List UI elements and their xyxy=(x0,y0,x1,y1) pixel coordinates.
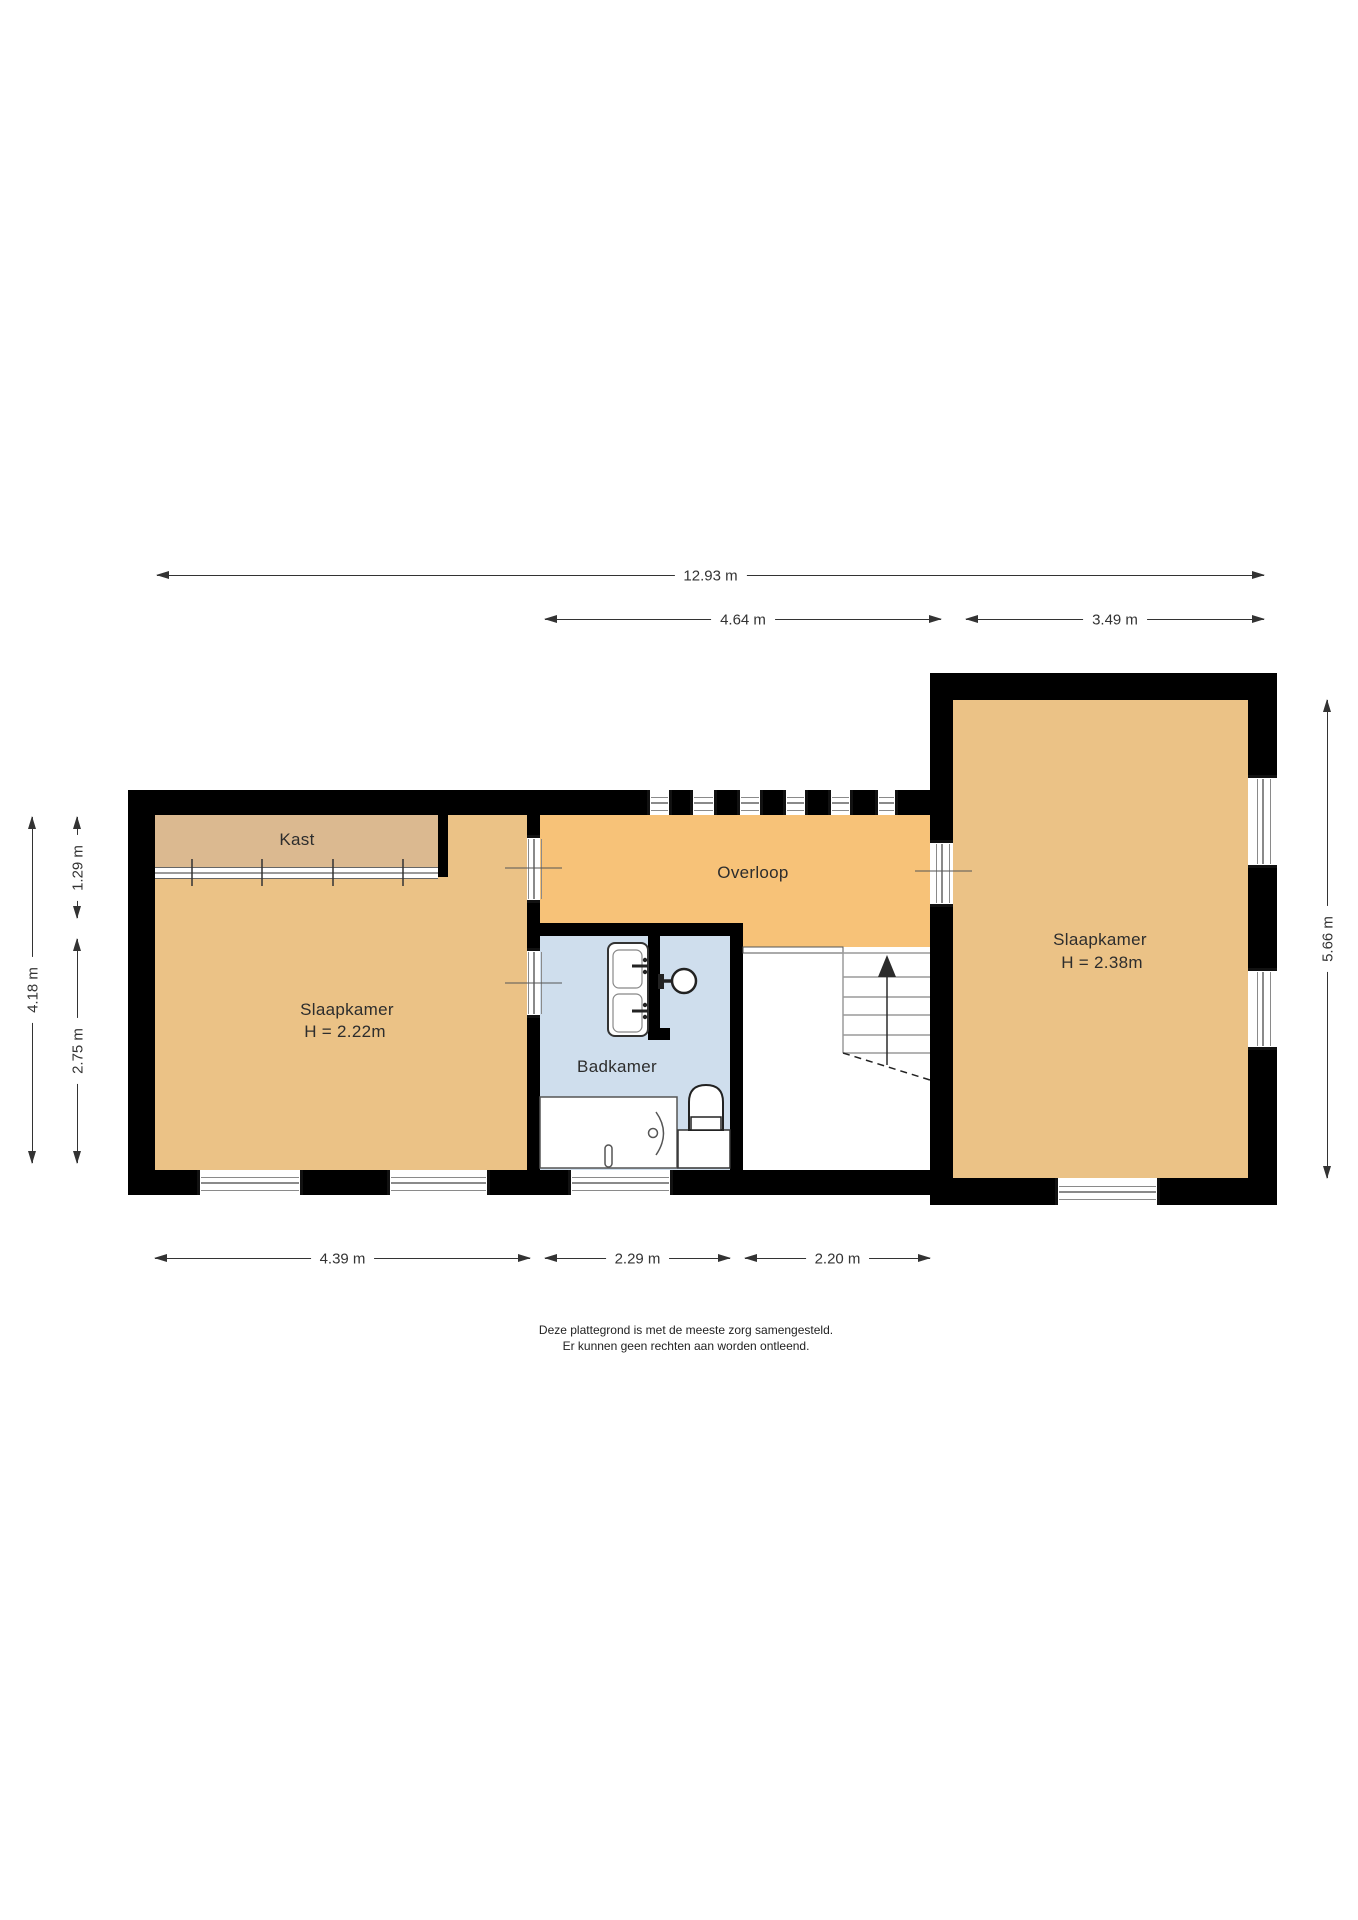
dimension-top-right: 3.49 m xyxy=(966,619,1264,620)
room-height-slaapkamer-left: H = 2.22m xyxy=(304,1022,386,1042)
room-label-slaapkamer-right: Slaapkamer xyxy=(1053,930,1147,950)
wall-interior-right xyxy=(930,700,953,1205)
wall-top-post-5 xyxy=(853,790,875,815)
dimension-left-total-label: 4.18 m xyxy=(25,957,42,1023)
room-label-badkamer: Badkamer xyxy=(577,1057,657,1077)
dimension-top-middle-label: 4.64 m xyxy=(711,612,775,629)
room-label-kast: Kast xyxy=(279,830,314,850)
wall-outer-right xyxy=(1248,673,1277,1205)
dimension-top-total-label: 12.93 m xyxy=(674,568,746,585)
dimension-top-total: 12.93 m xyxy=(157,575,1264,576)
stairwell-floor xyxy=(743,947,930,1170)
dimension-left-upper: 1.29 m xyxy=(77,817,78,918)
wall-outer-left xyxy=(128,790,155,1195)
dimension-bottom-left-label: 4.39 m xyxy=(311,1251,375,1268)
window-right-wall-1 xyxy=(1248,775,1277,868)
window-bottom-right xyxy=(1055,1178,1160,1205)
window-badkamer-bottom xyxy=(568,1170,673,1195)
disclaimer-line-1: Deze plattegrond is met de meeste zorg s… xyxy=(539,1322,833,1338)
dimension-bottom-left: 4.39 m xyxy=(155,1258,530,1259)
dimension-bottom-right: 2.20 m xyxy=(745,1258,930,1259)
floorplan-canvas: 12.93 m 4.64 m 3.49 m 4.39 m 2.29 m 2.20… xyxy=(0,0,1358,1920)
wall-shower-stub xyxy=(648,923,660,1040)
wall-top-post-3 xyxy=(763,790,783,815)
room-height-slaapkamer-right: H = 2.38m xyxy=(1061,953,1143,973)
dimension-left-upper-label: 1.29 m xyxy=(70,835,87,901)
closet-rail-icon xyxy=(155,867,438,879)
dimension-left-lower: 2.75 m xyxy=(77,939,78,1163)
disclaimer-line-2: Er kunnen geen rechten aan worden ontlee… xyxy=(539,1338,833,1354)
wall-top-post-1 xyxy=(672,790,690,815)
window-interior-left-1 xyxy=(527,835,540,903)
wall-top-post-4 xyxy=(808,790,828,815)
room-overloop-floor-extension xyxy=(743,923,930,947)
room-badkamer-floor xyxy=(540,935,730,1170)
wall-top-post-2 xyxy=(717,790,737,815)
window-overloop-top-4 xyxy=(783,790,808,815)
wall-shower-stub-foot xyxy=(648,1028,670,1040)
dimension-right-total-label: 5.66 m xyxy=(1320,906,1337,972)
dimension-top-middle: 4.64 m xyxy=(545,619,941,620)
dimension-left-lower-label: 2.75 m xyxy=(70,1018,87,1084)
window-overloop-top-5 xyxy=(828,790,853,815)
dimension-left-total: 4.18 m xyxy=(32,817,33,1163)
window-overloop-top-3 xyxy=(737,790,763,815)
dimension-bottom-right-label: 2.20 m xyxy=(806,1251,870,1268)
wall-top-right-section xyxy=(930,673,1277,700)
window-overloop-top-2 xyxy=(690,790,717,815)
wall-top-left-section xyxy=(128,790,647,815)
window-overloop-top-6 xyxy=(875,790,898,815)
disclaimer-text: Deze plattegrond is met de meeste zorg s… xyxy=(539,1322,833,1354)
window-bottom-left-1 xyxy=(197,1170,303,1195)
wall-badkamer-stairwell xyxy=(730,923,743,1170)
room-label-overloop: Overloop xyxy=(717,863,788,883)
room-label-slaapkamer-left: Slaapkamer xyxy=(300,1000,394,1020)
dimension-bottom-middle-label: 2.29 m xyxy=(606,1251,670,1268)
window-interior-right xyxy=(930,840,953,907)
dimension-right-total: 5.66 m xyxy=(1327,700,1328,1178)
window-right-wall-2 xyxy=(1248,968,1277,1050)
wall-overloop-badkamer xyxy=(527,923,743,936)
dimension-top-right-label: 3.49 m xyxy=(1083,612,1147,629)
window-bottom-left-2 xyxy=(387,1170,490,1195)
window-overloop-top-1 xyxy=(647,790,672,815)
window-interior-left-2 xyxy=(527,948,540,1018)
dimension-bottom-middle: 2.29 m xyxy=(545,1258,730,1259)
wall-kast-stub xyxy=(438,814,448,877)
